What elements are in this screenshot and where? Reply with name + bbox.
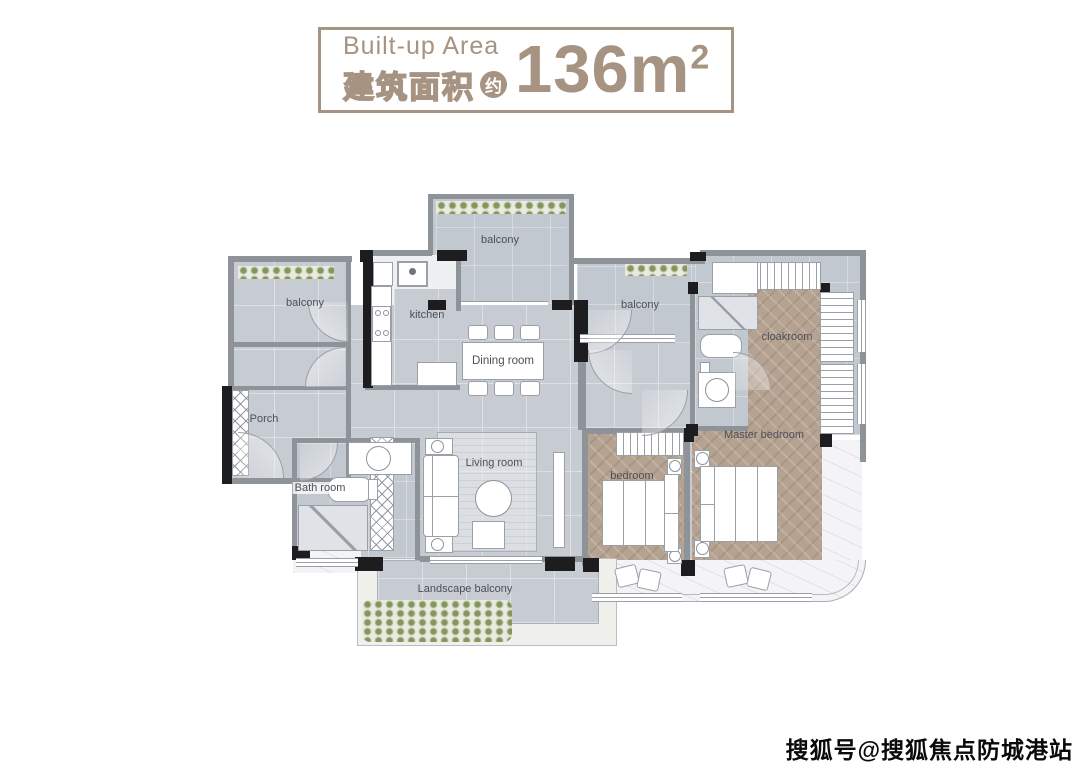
balcony-top-planter xyxy=(436,201,566,214)
wall-segment-dark xyxy=(684,428,694,442)
master-shower xyxy=(712,262,758,294)
bed xyxy=(602,480,666,546)
cloakroom-wardrobe-top xyxy=(753,262,821,290)
wall-segment-dark xyxy=(681,560,695,576)
room-label-landscape-balcony: Landscape balcony xyxy=(418,583,513,595)
wall-segment xyxy=(456,253,461,311)
nightstand-lamp-icon xyxy=(696,452,709,465)
bedroom-wall-cabinet xyxy=(553,452,565,548)
right-wall-window xyxy=(857,364,866,424)
wall-segment xyxy=(700,250,866,256)
bed-pillows xyxy=(700,466,715,542)
wall-segment-dark xyxy=(583,558,599,572)
wall-segment-dark xyxy=(574,300,588,362)
burner-icon xyxy=(375,330,381,336)
burner-icon xyxy=(383,330,389,336)
wall-segment xyxy=(582,428,588,566)
wall-segment xyxy=(684,428,690,566)
master-side-bay xyxy=(822,440,862,565)
area-value: 136m2 xyxy=(515,40,710,100)
room-label-balcony-left: balcony xyxy=(286,297,324,309)
burner-icon xyxy=(375,310,381,316)
right-wall-window xyxy=(857,300,866,352)
cloakroom-wardrobe-right xyxy=(820,364,854,434)
nightstand-lamp-icon xyxy=(696,542,709,555)
master-bed xyxy=(714,466,778,542)
page: Built-up Area 建筑面积 约 136m2 xyxy=(0,0,1079,773)
master-bay-window xyxy=(700,593,812,602)
wall-segment-dark xyxy=(437,250,467,261)
wall-segment xyxy=(860,250,866,462)
built-up-area-cn-row: 建筑面积 约 xyxy=(343,62,507,107)
wall-segment xyxy=(228,256,234,388)
coffee-table xyxy=(475,480,512,517)
built-up-area-en-title: Built-up Area xyxy=(343,33,507,59)
sofa xyxy=(423,455,459,537)
wall-segment xyxy=(230,342,348,347)
dining-chair xyxy=(468,381,488,396)
wall-segment xyxy=(228,256,352,262)
room-label-balcony-right: balcony xyxy=(621,299,659,311)
wall-segment-dark xyxy=(545,557,575,571)
shower-area xyxy=(298,505,368,551)
room-label-balcony-top: balcony xyxy=(481,234,519,246)
room-label-kitchen: kitchen xyxy=(410,309,445,321)
wall-segment xyxy=(690,282,695,432)
wall-segment xyxy=(572,258,705,264)
cloakroom-floor xyxy=(748,286,822,432)
kitchen-cabinet xyxy=(417,362,457,386)
dining-chair xyxy=(520,381,540,396)
toilet-tank xyxy=(368,479,378,500)
wall-segment-dark xyxy=(688,282,698,294)
dining-chair xyxy=(494,381,514,396)
wall-segment-dark xyxy=(355,557,383,571)
wall-segment xyxy=(415,438,420,560)
side-table-lamp-icon xyxy=(431,440,444,453)
built-up-area-cn-title: 建筑面积 xyxy=(343,62,475,107)
area-superscript: 2 xyxy=(690,39,710,77)
room-label-porch: Porch xyxy=(250,413,279,425)
wall-segment-dark xyxy=(360,250,373,262)
room-label-bathroom: Bath room xyxy=(293,482,348,494)
cloakroom-wardrobe-right xyxy=(820,292,854,362)
room-label-cloakroom: cloakroom xyxy=(762,331,813,343)
master-shower-tray xyxy=(698,296,758,330)
bath-sink xyxy=(366,446,391,471)
burner-icon xyxy=(383,310,389,316)
wall-segment-dark xyxy=(690,252,706,261)
sohu-watermark: 搜狐号@搜狐焦点防城港站 xyxy=(786,731,1073,765)
landscape-balcony-planting xyxy=(362,600,512,642)
bay-cushion xyxy=(636,568,662,592)
dining-chair xyxy=(494,325,514,340)
dining-chair xyxy=(520,325,540,340)
bedroom-wardrobe xyxy=(616,432,684,456)
balcony-right-planter xyxy=(625,264,687,276)
room-label-living: Living room xyxy=(466,457,523,469)
side-table-lamp-icon xyxy=(431,538,444,551)
bedroom-bay-window xyxy=(592,593,682,602)
room-label-dining: Dining room xyxy=(472,355,534,367)
wall-segment-dark xyxy=(552,300,572,310)
dining-chair xyxy=(468,325,488,340)
bath-bay-window xyxy=(296,558,358,567)
room-label-bedroom: bedroom xyxy=(610,470,653,482)
faucet-icon xyxy=(409,268,416,275)
bed-pillows xyxy=(664,474,679,552)
living-balcony-door-window xyxy=(430,556,542,564)
area-number: 136m xyxy=(515,32,690,107)
area-header-titles: Built-up Area 建筑面积 约 xyxy=(343,33,507,106)
approx-badge: 约 xyxy=(480,71,507,98)
balcony-left-planter xyxy=(238,266,334,279)
master-sink xyxy=(705,378,729,402)
ottoman xyxy=(472,521,505,549)
area-header-box: Built-up Area 建筑面积 约 136m2 xyxy=(318,27,734,113)
room-label-master-bedroom: Master bedroom xyxy=(724,429,804,441)
nightstand-lamp-icon xyxy=(669,460,681,472)
wall-segment-dark xyxy=(222,386,232,484)
fridge xyxy=(373,262,393,286)
wall-segment xyxy=(578,362,586,430)
